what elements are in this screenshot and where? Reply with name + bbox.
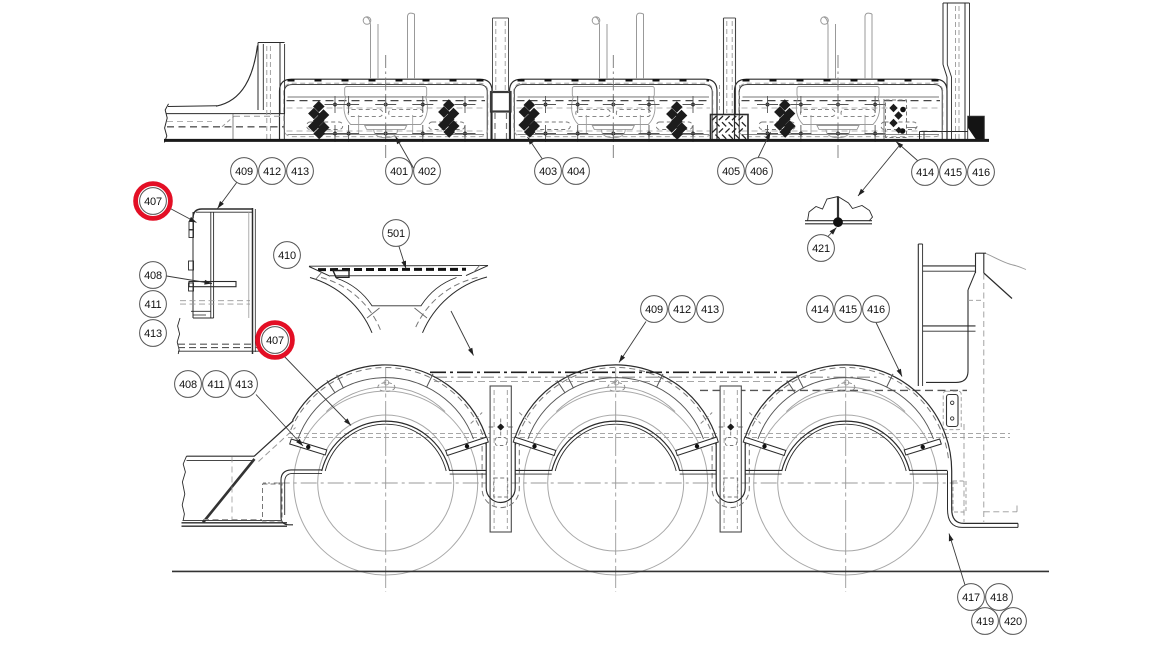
svg-text:408: 408 (179, 379, 197, 391)
svg-text:415: 415 (944, 167, 962, 179)
svg-text:405: 405 (722, 166, 740, 178)
svg-text:413: 413 (144, 328, 162, 340)
svg-text:413: 413 (235, 379, 253, 391)
svg-text:415: 415 (839, 304, 857, 316)
svg-text:407: 407 (144, 196, 162, 208)
svg-text:402: 402 (418, 166, 436, 178)
svg-text:420: 420 (1004, 616, 1022, 628)
svg-text:408: 408 (144, 270, 162, 282)
svg-text:414: 414 (916, 167, 934, 179)
svg-text:421: 421 (812, 243, 830, 255)
svg-text:413: 413 (701, 304, 719, 316)
svg-text:417: 417 (962, 592, 980, 604)
svg-text:416: 416 (972, 167, 990, 179)
svg-text:409: 409 (645, 304, 663, 316)
svg-text:418: 418 (990, 592, 1008, 604)
svg-text:413: 413 (291, 166, 309, 178)
svg-text:410: 410 (278, 250, 296, 262)
svg-text:406: 406 (750, 166, 768, 178)
svg-text:412: 412 (673, 304, 691, 316)
svg-text:404: 404 (567, 166, 585, 178)
svg-text:501: 501 (387, 228, 405, 240)
svg-text:403: 403 (539, 166, 557, 178)
svg-text:407: 407 (266, 335, 284, 347)
svg-text:419: 419 (976, 616, 994, 628)
svg-text:411: 411 (208, 379, 225, 391)
svg-text:401: 401 (390, 166, 408, 178)
svg-text:409: 409 (235, 166, 253, 178)
svg-text:416: 416 (867, 304, 885, 316)
svg-text:412: 412 (263, 166, 281, 178)
svg-text:414: 414 (811, 304, 829, 316)
svg-text:411: 411 (145, 299, 162, 311)
